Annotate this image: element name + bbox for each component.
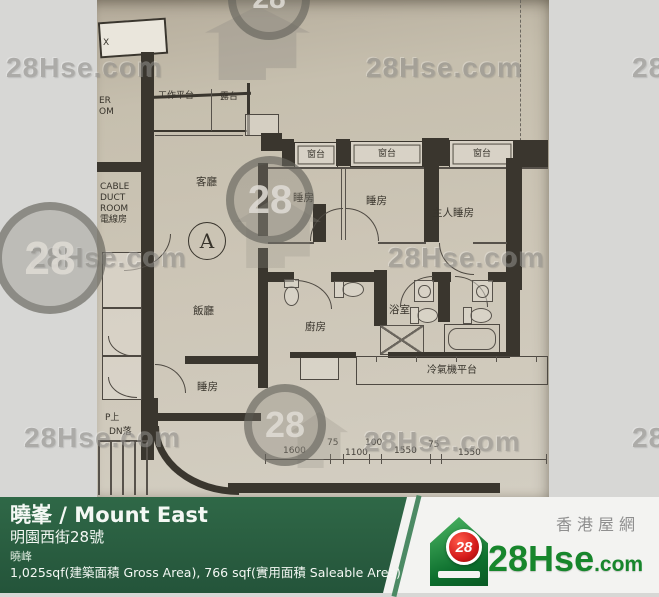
- edge-text-line2: OM: [99, 107, 114, 117]
- wall: [336, 139, 350, 166]
- room-label-ac-platform: 冷氣機平台: [427, 365, 477, 377]
- cable-room-line1: CABLE: [100, 182, 129, 192]
- bay-window-label: 窗台: [307, 150, 325, 160]
- platform-tick: [376, 356, 377, 362]
- wall-line: [155, 135, 243, 136]
- brand-circle-icon: 28: [446, 529, 482, 565]
- platform-tick: [536, 356, 537, 362]
- bathtub-icon: [444, 324, 500, 354]
- brand-house-door: [438, 571, 480, 578]
- brand-circle-number: 28: [456, 539, 473, 556]
- sink-icon: [414, 280, 434, 302]
- watermark-number: 28: [265, 404, 305, 446]
- watermark-number: 28: [24, 231, 75, 285]
- toilet-tank-icon: [284, 279, 299, 288]
- watermark-logo-icon: 28: [0, 202, 106, 314]
- toilet-tank-icon: [410, 307, 419, 324]
- platform-tick: [416, 356, 417, 362]
- brand-name: 28Hse: [488, 543, 594, 575]
- room-label-bedroom-3: 睡房: [197, 381, 218, 393]
- watermark-text: 28Hse.com: [24, 422, 181, 454]
- property-area: 1,025sqf(建築面積 Gross Area), 766 sqf(實用面積 …: [10, 562, 401, 581]
- page: { "watermark": { "text": "28Hse.com", "l…: [0, 0, 659, 593]
- wall: [228, 483, 500, 493]
- sink-icon: [472, 280, 493, 302]
- toilet-tank-icon: [463, 307, 472, 324]
- kitchen-counter: [300, 355, 339, 380]
- bay-window: 窗台: [350, 141, 424, 167]
- brand-wordmark: 28Hse.com: [488, 543, 643, 575]
- watermark-logo-icon: 28: [226, 156, 314, 244]
- room-label-bedroom-2: 睡房: [366, 195, 387, 207]
- room-label-living: 客廳: [196, 176, 217, 188]
- watermark-text: 28Hse.com: [632, 422, 659, 454]
- bay-window-label: 窗台: [378, 149, 396, 159]
- toilet-icon: [470, 308, 492, 323]
- watermark-logo-icon: 28: [244, 384, 326, 466]
- wall: [438, 274, 450, 322]
- ac-platform: 冷氣機平台: [356, 356, 548, 385]
- watermark-text: 28Hse.com: [632, 52, 659, 84]
- wall: [290, 352, 356, 358]
- bay-window: 窗台: [294, 142, 338, 168]
- toilet-icon: [284, 286, 299, 306]
- property-address: 明園西街28號: [10, 526, 104, 547]
- brand-tld: .com: [594, 554, 643, 575]
- wall: [258, 248, 268, 388]
- toilet-icon: [417, 308, 438, 323]
- toilet-icon: [342, 282, 364, 297]
- room-label-kitchen: 廚房: [305, 321, 326, 333]
- cable-room-line4: 電線房: [100, 215, 127, 225]
- property-title: 曉峯 / Mount East: [10, 499, 208, 529]
- room-label-master-bedroom: 主人睡房: [432, 207, 474, 219]
- watermark-number: 28: [252, 0, 285, 16]
- cable-room-line3: ROOM: [100, 204, 128, 214]
- room-label-dining: 飯廳: [193, 305, 214, 317]
- wall: [422, 138, 449, 166]
- brand-chinese-name: 香港屋網: [556, 511, 640, 535]
- bay-window-label: 窗台: [473, 149, 491, 159]
- room-label-work-platform: 工作平台: [158, 91, 194, 101]
- toilet-tank-icon: [334, 281, 344, 298]
- watermark-text: 28Hse.com: [388, 242, 545, 274]
- dimension-tick: [546, 454, 547, 464]
- wall: [185, 356, 263, 364]
- watermark-text: 28Hse.com: [364, 426, 521, 458]
- wall-line: [211, 89, 212, 131]
- wall-line: [151, 130, 248, 132]
- wall: [261, 133, 282, 151]
- wall: [506, 270, 520, 356]
- wall: [374, 270, 387, 326]
- room-label-balcony: 露台: [220, 92, 238, 102]
- cable-room-line2: DUCT: [100, 193, 125, 203]
- watermark-text: 28Hse.com: [6, 52, 163, 84]
- wall: [424, 164, 439, 242]
- shower-icon: [380, 325, 424, 355]
- platform-tick: [456, 356, 457, 362]
- unit-label: A: [200, 229, 214, 253]
- wall: [97, 162, 142, 172]
- edge-text-corner: X: [103, 38, 109, 48]
- platform-tick: [496, 356, 497, 362]
- watermark-number: 28: [248, 178, 293, 223]
- unit-label-circle: A: [188, 222, 226, 260]
- edge-text-line1: ER: [99, 96, 111, 106]
- dimension-tick: [343, 454, 344, 464]
- watermark-text: 28Hse.com: [366, 52, 523, 84]
